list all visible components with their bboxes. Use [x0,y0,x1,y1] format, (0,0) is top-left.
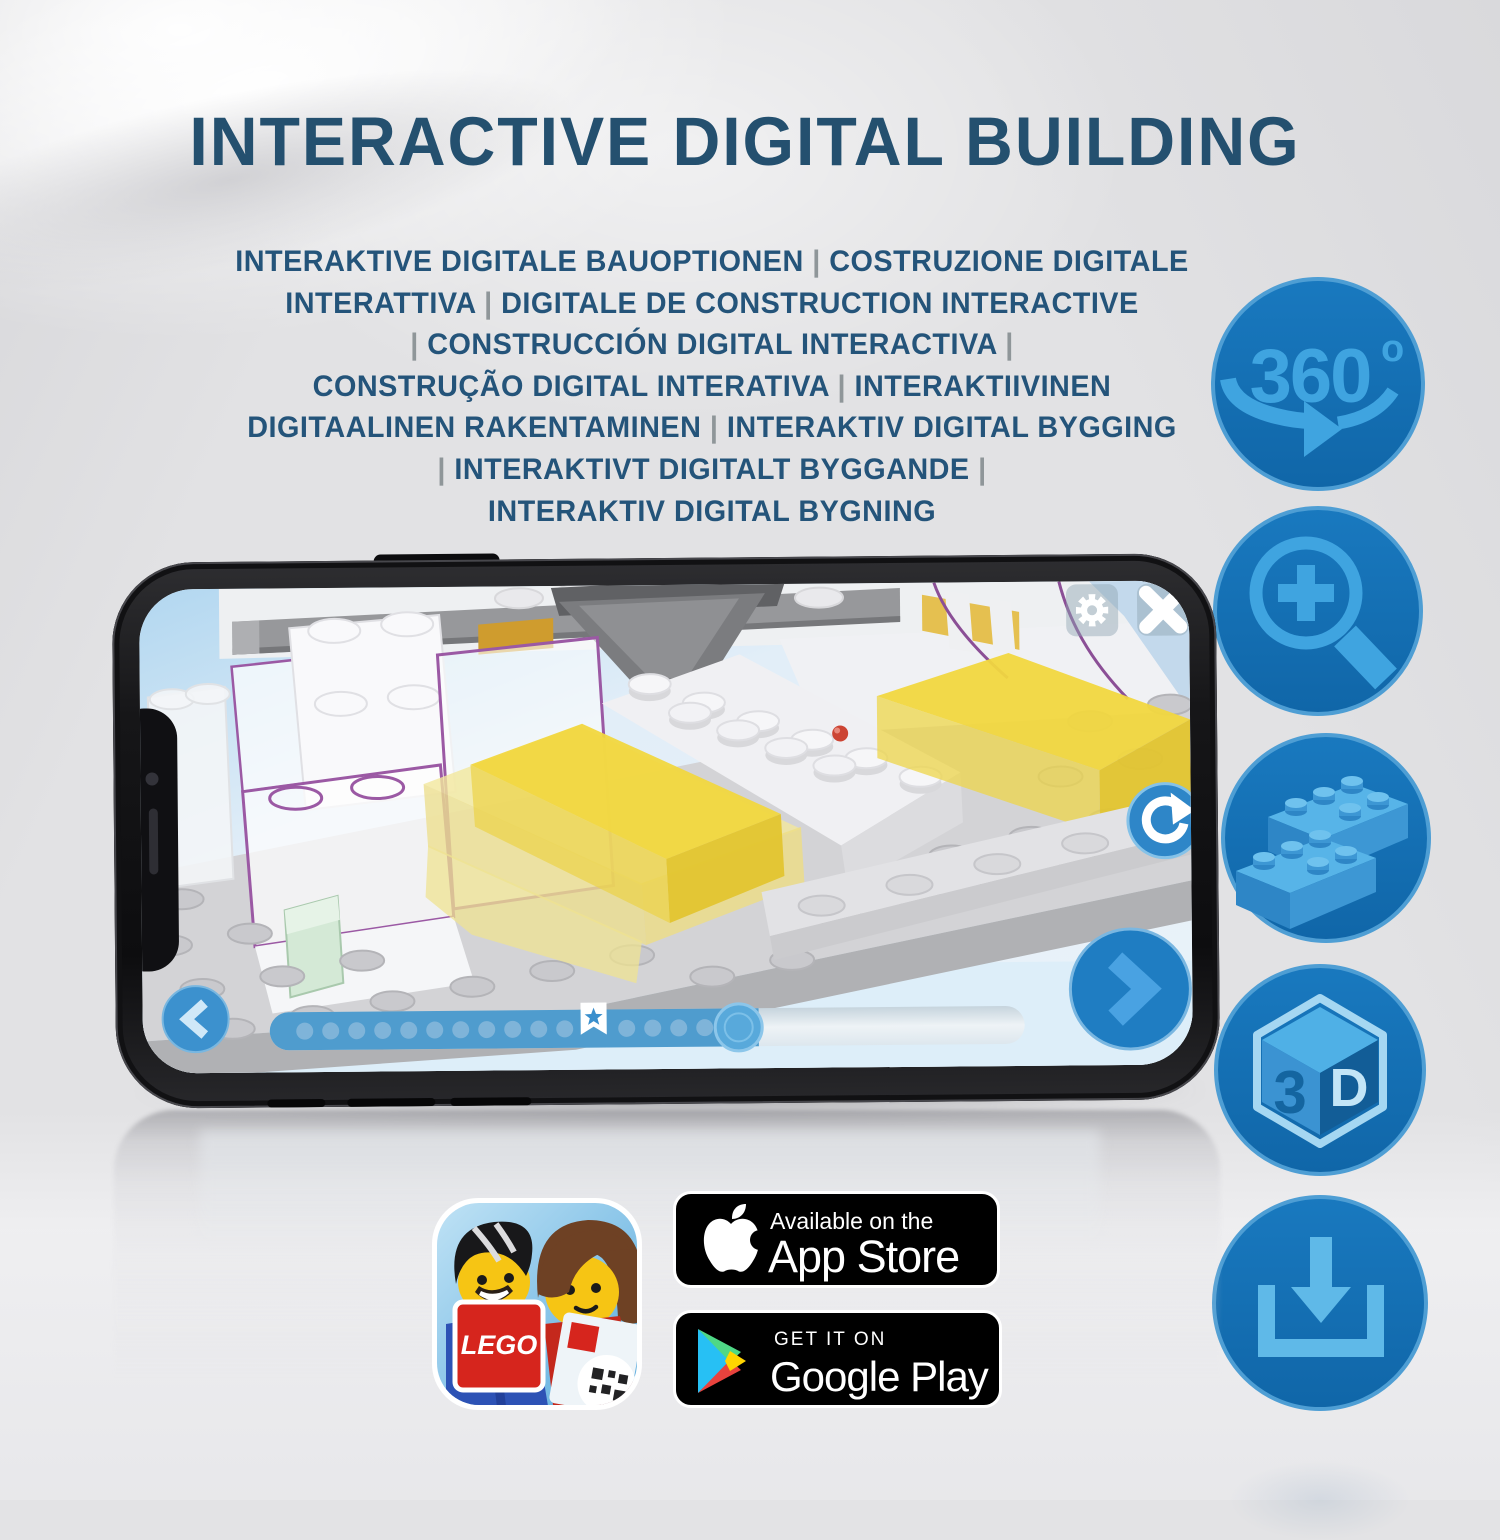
svg-text:o: o [1381,328,1404,370]
svg-text:D: D [1330,1058,1369,1118]
svg-text:3: 3 [1273,1059,1306,1126]
svg-text:LEGO: LEGO [461,1330,538,1360]
